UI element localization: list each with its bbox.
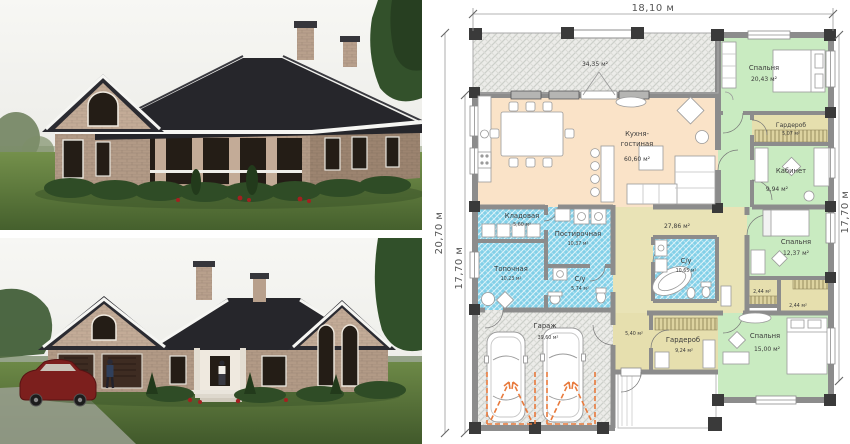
boiler-name: Топочная — [493, 265, 528, 273]
bedroom-top-name: Спальня — [749, 64, 779, 72]
wardrobe-bottom-area: 9,24 м² — [675, 348, 693, 354]
kitchen-name-2: гостиная — [621, 140, 654, 148]
bath-small-area: 5,74 м² — [571, 286, 589, 292]
dim-left-outer: 20,70 м — [434, 212, 445, 255]
kitchen-name-1: Кухня- — [625, 130, 649, 138]
exterior-render-bottom — [0, 238, 422, 444]
side-windows — [325, 137, 399, 170]
garage-name: Гараж — [534, 322, 557, 330]
kitchen-area: 60,60 м² — [624, 156, 651, 163]
sofa — [675, 156, 715, 204]
render-bottom-svg — [0, 238, 422, 444]
laundry-area: 10,37 м² — [568, 241, 589, 247]
arched-window — [92, 315, 116, 340]
boiler-area: 10,23 м² — [501, 276, 522, 282]
terrace-area: 34,35 м² — [582, 61, 609, 68]
bath-main-name: С/у — [680, 257, 691, 265]
laundry-name: Постирочная — [555, 230, 602, 238]
porch — [618, 372, 716, 428]
dim-top: 18,10 м — [632, 3, 675, 14]
bath-small-name: С/у — [574, 275, 585, 283]
wardrobe-top-area: 5,07 м² — [782, 131, 800, 137]
entry-area: 5,40 м² — [625, 331, 643, 337]
bedroom-mid-name: Спальня — [781, 238, 811, 246]
car-1 — [485, 332, 528, 422]
office-area: 9,94 м² — [766, 186, 789, 193]
dim-right: 17,70 м — [840, 191, 850, 234]
bedroom-bottom-name: Спальня — [750, 332, 780, 340]
wardrobe-top-name: Гардероб — [776, 122, 806, 129]
pantry-name: Кладовая — [505, 212, 539, 220]
hall-area: 27,86 м² — [664, 223, 691, 230]
garage-area: 39,60 м² — [538, 335, 559, 341]
floor-plan: 18,10 м 20,70 м 17,70 м 17,70 м 34,35 м²… — [425, 0, 850, 444]
wardrobe-bottom-name: Гардероб — [666, 336, 700, 344]
render-top-svg — [0, 0, 422, 230]
dining-table — [501, 112, 563, 156]
exterior-render-top — [0, 0, 422, 230]
pantry-area: 5,60 м² — [513, 222, 531, 228]
page: 18,10 м 20,70 м 17,70 м 17,70 м 34,35 м²… — [0, 0, 850, 444]
arched-window — [88, 92, 118, 126]
bar-counter — [601, 146, 614, 202]
kitchen-counter — [478, 96, 491, 182]
bath-main-area: 10,65 м² — [676, 268, 697, 274]
veranda-opening — [150, 138, 302, 184]
dim-left-inner: 17,70 м — [454, 247, 465, 290]
bedroom-mid-area: 12,37 м² — [783, 250, 810, 257]
floor-plan-svg: 18,10 м 20,70 м 17,70 м 17,70 м 34,35 м²… — [425, 0, 850, 444]
toilet — [702, 287, 710, 298]
entry-fill — [613, 313, 651, 372]
bedroom-bottom-area: 15,00 м² — [754, 346, 781, 353]
office-name: Кабинет — [776, 167, 806, 175]
vestibule-fill — [718, 113, 752, 207]
closet-b-area: 2,44 м² — [789, 303, 807, 309]
closet-a-area: 2,44 м² — [753, 289, 771, 295]
bedroom-top-area: 20,43 м² — [751, 76, 778, 83]
